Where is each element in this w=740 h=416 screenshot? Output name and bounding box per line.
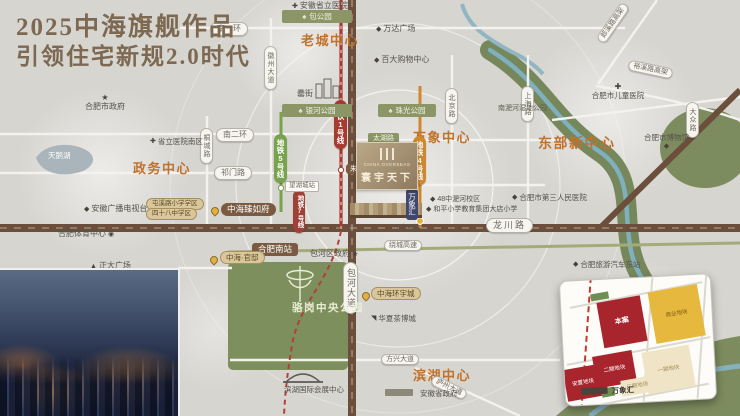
museum-icon: ◆ — [664, 143, 669, 150]
poster-title: 2025中海旗舰作品 引领住宅新规2.0时代 — [16, 12, 251, 72]
school-icon: ◆ — [430, 196, 435, 203]
wanda-poi: ◆ 万达广场 — [376, 25, 415, 33]
sheng-hospital-label: 安徽省立医院 — [300, 2, 348, 10]
star-icon: ★ — [352, 251, 358, 258]
wanxianghui-pill: 万象汇 — [406, 189, 418, 220]
luogang-park-label: 骆岗中央公园 — [292, 304, 364, 315]
leijie-buildings-icon — [316, 79, 339, 98]
road-pill-tongchenglu: 桐城路 — [200, 128, 213, 164]
hospital-cross-icon: ✚ — [150, 138, 156, 145]
inset-caption-bar — [581, 387, 607, 395]
sheng-hospital-south-poi: ✚ 省立医院南区 — [150, 138, 203, 146]
tea-city-label: 华夏茶博城 — [378, 315, 416, 323]
wanda-label: 万达广场 — [383, 25, 415, 33]
hospital3-label: 合肥市第三人民医院 — [519, 194, 587, 202]
sheng-hospital-south-label: 省立医院南区 — [158, 138, 203, 146]
tree-icon: ♠ — [389, 107, 393, 115]
road-pill-nanerhuan: 南二环 — [216, 128, 254, 142]
school-pill-b: 四十八中学区 — [146, 208, 197, 220]
inset-caption: 万象汇 — [611, 384, 634, 396]
baida-poi: ◆ 百大购物中心 — [374, 56, 429, 64]
hospital3-poi: ◆ 合肥市第三人民医院 — [512, 194, 587, 202]
map-poster: 2025中海旗舰作品 引领住宅新规2.0时代 政务中心 老城中心 万象中心 东部… — [0, 0, 740, 416]
plot-inset-map: 本案 商业地块 二期地块 安置地块 一期地块 三期地块 万象汇 — [559, 273, 717, 407]
mall-icon: ◆ — [376, 26, 381, 33]
poster-title-line1: 2025中海旗舰作品 — [16, 12, 251, 43]
road-pill-qimenlu: 祁门路 — [214, 166, 252, 180]
hefei-gov-poi: ★ 合肥市政府 — [80, 94, 130, 111]
east-bus-station-label: 合肥旅游汽车东站 — [580, 261, 640, 269]
zhuguang-park-label: 珠光公园 — [395, 107, 425, 115]
inset-block-resettle: 安置地块 — [563, 364, 604, 402]
ring-expressway-line — [228, 243, 740, 252]
exhibition-center-label: 滨湖国际会展中心 — [284, 386, 344, 394]
children-hospital-label: 合肥市儿童医院 — [592, 92, 645, 100]
tv-station-label: 安徽广播电视台 — [91, 205, 147, 213]
baogongyuan-bar: ♠ 包公园 — [282, 10, 352, 23]
baida-label: 百大购物中心 — [381, 56, 429, 64]
project-logo-block: CHINA OVERSEAS 寰宇天下 — [356, 142, 418, 190]
city-night-photo — [0, 268, 180, 416]
inset-block-commercial: 商业地块 — [648, 284, 706, 344]
school48-poi: ◆ 48中淝河校区 — [430, 196, 480, 203]
museum-poi: 合肥市博物馆 ◆ — [644, 134, 689, 150]
poster-title-line2: 引领住宅新规2.0时代 — [16, 43, 251, 72]
huanyucheng-pin — [362, 288, 370, 304]
wetland-park-label: 南淝河湿地公园 — [498, 105, 547, 112]
station-tag-wanghucheng: 望湖城站 — [285, 181, 319, 192]
sports-center-poi: 合肥体育中心 ◉ — [58, 230, 114, 238]
center-label-laocheng: 老城中心 — [301, 34, 359, 47]
stadium-icon: ◉ — [108, 231, 114, 238]
province-gov-building-icon — [385, 389, 413, 396]
road-pill-fangxing: 方兴大道 — [381, 354, 419, 365]
leijie-label: 罍街 — [297, 90, 313, 98]
bird-icon: ◥ — [371, 315, 376, 322]
metro-line7-pill: 地铁7号线 — [293, 190, 305, 233]
guandi-pin — [210, 252, 218, 268]
baohe-gov-poi: 包河区政府 ★ — [310, 250, 358, 258]
photo-skyline — [0, 356, 178, 416]
museum-label: 合肥市博物馆 — [644, 134, 689, 142]
tv-station-poi: ◆ 安徽广播电视台 — [84, 205, 147, 213]
school48-label: 48中淝河校区 — [437, 196, 480, 203]
hospital-cross-icon: ✚ — [615, 83, 622, 91]
road-pill-raocheng: 绕城高速 — [384, 240, 422, 251]
tv-tower-icon: ◆ — [84, 206, 89, 213]
road-pill-longchuanlu: 龙川路 — [486, 218, 533, 233]
station-dot-line5 — [278, 185, 283, 190]
yinhe-park-bar: ♠ 银河公园 — [282, 104, 352, 117]
province-gov-label: 安徽省政府 — [420, 390, 458, 398]
huanyucheng-tag: 中海环宇城 — [371, 287, 421, 300]
zhenrufu-pin — [211, 203, 219, 219]
road-pill-huizhoudadao: 徽州大道 — [264, 46, 277, 90]
school-icon: ◆ — [426, 206, 431, 213]
logo-project-name: 寰宇天下 — [361, 169, 413, 184]
road-pill-beijinglu: 北京路 — [445, 88, 458, 124]
star-icon: ★ — [101, 94, 108, 102]
tianehu-label: 天鹅湖 — [48, 152, 71, 160]
station-dot-line1 — [338, 167, 343, 172]
tea-city-poi: ◥ 华夏茶博城 — [371, 315, 416, 323]
zhuguang-park-bar: ♠ 珠光公园 — [378, 104, 436, 117]
hospital-cross-icon: ✚ — [292, 3, 298, 10]
tree-icon: ♠ — [299, 107, 303, 115]
east-bus-station-poi: ◆ 合肥旅游汽车东站 — [573, 261, 640, 269]
luogang-park-area — [228, 262, 348, 370]
station-label-wangdaying: 王大郢站 — [394, 225, 420, 232]
baogongyuan-label: 包公园 — [309, 13, 332, 21]
children-hospital-poi: ✚ 合肥市儿童医院 — [588, 83, 648, 100]
baohe-gov-label: 包河区政府 — [310, 250, 350, 258]
center-label-zhengwu: 政务中心 — [133, 162, 191, 175]
bus-station-icon: ◆ — [573, 261, 578, 268]
yinhe-park-label: 银河公园 — [305, 107, 335, 115]
metro-line5-pill: 地铁5号线 — [274, 134, 287, 183]
school-dadian-poi: ◆ 和平小学教育集团大店小学 — [426, 206, 517, 213]
zhenrufu-tag: 中海臻如府 — [221, 203, 276, 216]
hospital-diamond-icon: ◆ — [512, 194, 517, 201]
guandi-tag: 中海·官邸 — [220, 251, 265, 264]
school-dadian-label: 和平小学教育集团大店小学 — [433, 206, 517, 213]
sheng-hospital-poi: ✚ 安徽省立医院 — [292, 2, 348, 10]
sports-center-label: 合肥体育中心 — [58, 230, 106, 238]
logo-building-icon — [380, 148, 394, 160]
inset-block-main: 本案 — [596, 295, 647, 348]
center-label-dongbu: 东部新中心 — [538, 138, 616, 152]
road-pill-shanghailu: 上海路 — [521, 86, 534, 122]
hefei-gov-label: 合肥市政府 — [85, 103, 125, 111]
exhibition-bridge-icon — [283, 374, 323, 382]
tree-icon: ♠ — [302, 13, 306, 21]
mall-icon: ◆ — [374, 57, 379, 64]
logo-brand-en: CHINA OVERSEAS — [364, 162, 411, 167]
